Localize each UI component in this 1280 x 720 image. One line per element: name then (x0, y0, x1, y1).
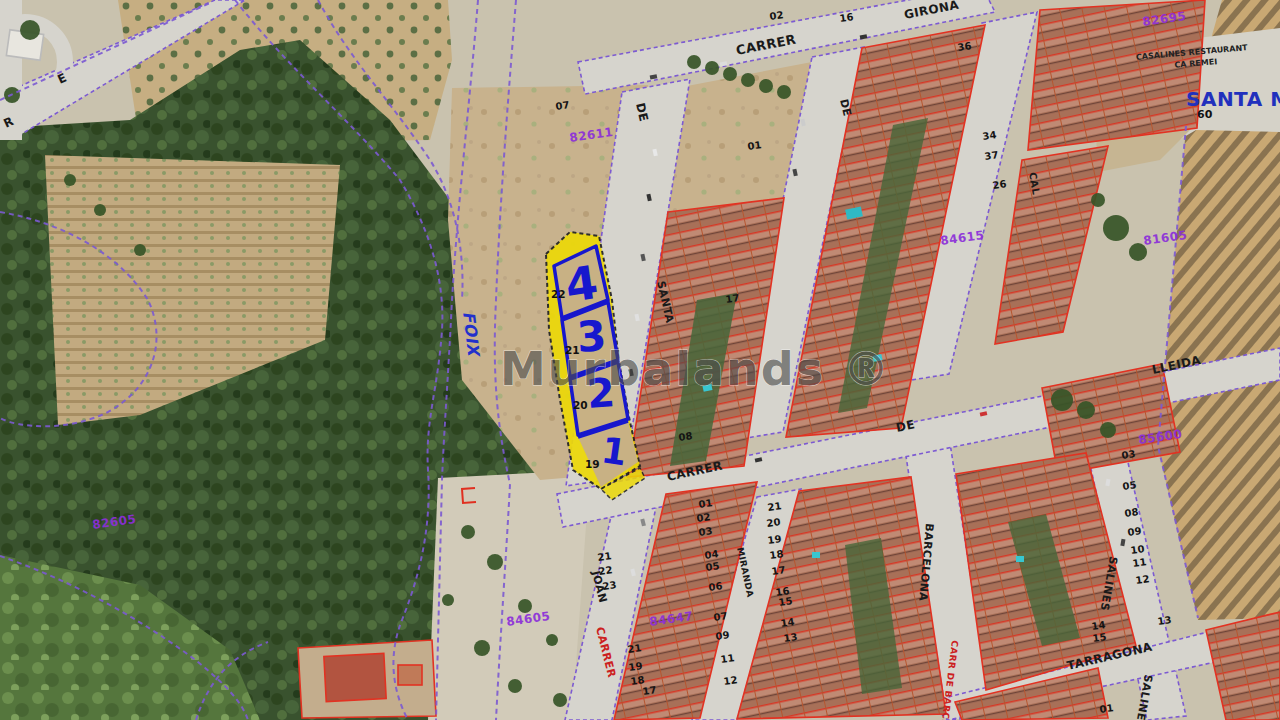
parcel-number: 23 (602, 579, 617, 592)
parcel-number: 05 (1122, 479, 1137, 492)
parcel-number: 14 (780, 616, 795, 629)
parcel-number: 09 (715, 629, 730, 642)
parcel-number: 18 (769, 548, 784, 561)
rural-roof (324, 653, 386, 701)
parcel-number: 09 (1127, 525, 1142, 538)
parcel-number: 19 (628, 660, 643, 673)
parcel-number: 15 (1092, 631, 1107, 644)
watermark: Murbalands ® (500, 342, 891, 396)
parcel-number: 21 (767, 500, 782, 513)
parcel-number: 21 (627, 642, 642, 655)
parcel-number: 11 (1132, 556, 1147, 569)
parcel-number: 13 (1157, 614, 1172, 627)
parcel-number: 08 (1124, 506, 1139, 519)
parcel-number: 20 (766, 516, 781, 529)
parcel-number: 10 (1130, 543, 1145, 556)
parcel-number: 03 (698, 525, 713, 538)
parcel-number: 37 (984, 149, 999, 162)
parcel-number: 06 (708, 580, 723, 593)
map-viewport[interactable]: 4 3 2 1 22 21 20 19 CARRERGIRONADEDESANT… (0, 0, 1280, 720)
parcel-number: 19 (767, 533, 782, 546)
parcel-number: 08 (678, 430, 693, 443)
parcel-number: 11 (720, 652, 735, 665)
parcel-number: 13 (783, 631, 798, 644)
parcel-number: 16 (839, 11, 854, 24)
parcel-number: 12 (1135, 573, 1150, 586)
parcel-number: 03 (1121, 448, 1136, 461)
parcel-number: 12 (723, 674, 738, 687)
parcel-number: 07 (713, 610, 728, 623)
plot-ref-22: 22 (551, 288, 566, 300)
parcel-number: 05 (705, 560, 720, 573)
santa-m-number: 60 (1197, 108, 1213, 121)
parcel-number: 21 (597, 550, 612, 563)
parcel-number: 07 (555, 99, 570, 112)
parcel-number: 36 (957, 40, 972, 53)
parcel-number: 14 (1091, 619, 1106, 632)
cadastral-map[interactable]: 4 3 2 1 22 21 20 19 CARRERGIRONADEDESANT… (0, 0, 1280, 720)
parcel-number: 01 (747, 139, 762, 152)
plot-ref-20: 20 (573, 399, 588, 411)
parcel-number: 22 (598, 564, 613, 577)
parcel-number: 01 (698, 497, 713, 510)
parcel-number: 17 (642, 684, 657, 697)
parcel-number: 02 (696, 511, 711, 524)
parcel-number: 01 (1099, 702, 1114, 715)
parcel-number: 02 (769, 9, 784, 22)
rural-roof-small (398, 665, 422, 685)
parcel-number: 17 (725, 292, 740, 305)
plot-ref-19: 19 (585, 458, 600, 470)
parcel-number: 04 (704, 548, 719, 561)
parcel-number: 15 (778, 595, 793, 608)
parcel-number: 17 (771, 564, 786, 577)
parcel-number: 26 (992, 178, 1007, 191)
parcel-number: 34 (982, 129, 997, 142)
